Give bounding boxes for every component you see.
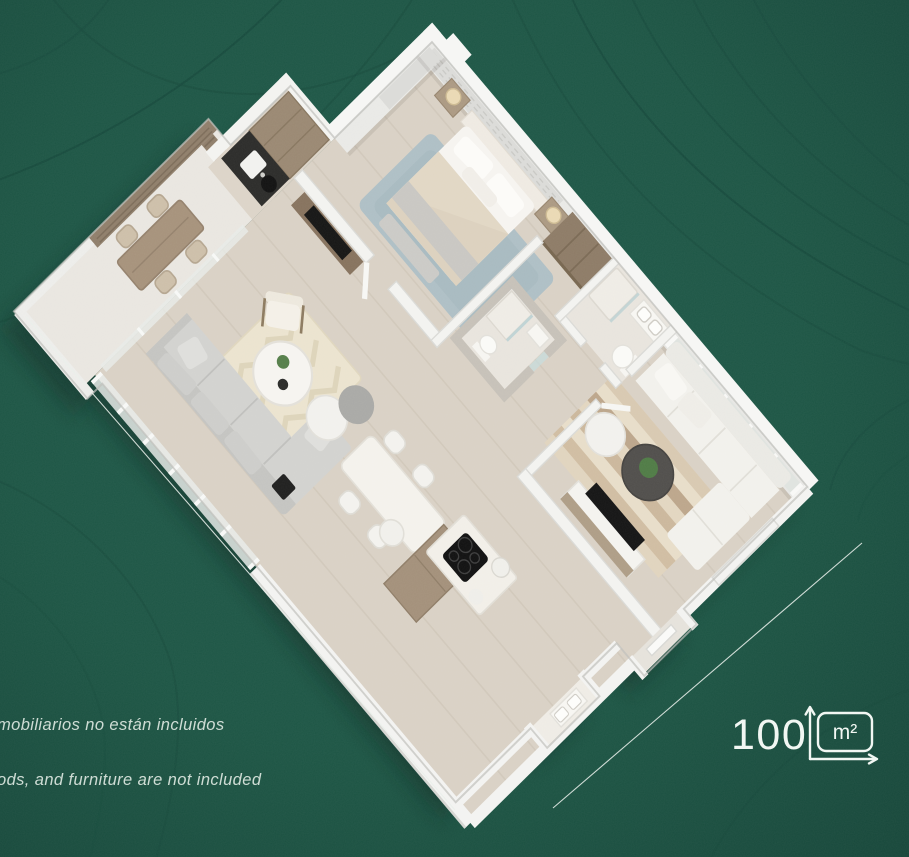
disclaimer-english: ods, and furniture are not included — [0, 771, 261, 790]
page-background: mobiliarios no están incluidos ods, and … — [0, 0, 909, 857]
area-badge: 100 m² — [731, 704, 901, 774]
disclaimer-spanish: mobiliarios no están incluidos — [0, 716, 225, 735]
area-value: 100 — [731, 712, 807, 758]
square-meters-icon: m² — [801, 704, 889, 770]
square-meters-label: m² — [833, 721, 858, 744]
